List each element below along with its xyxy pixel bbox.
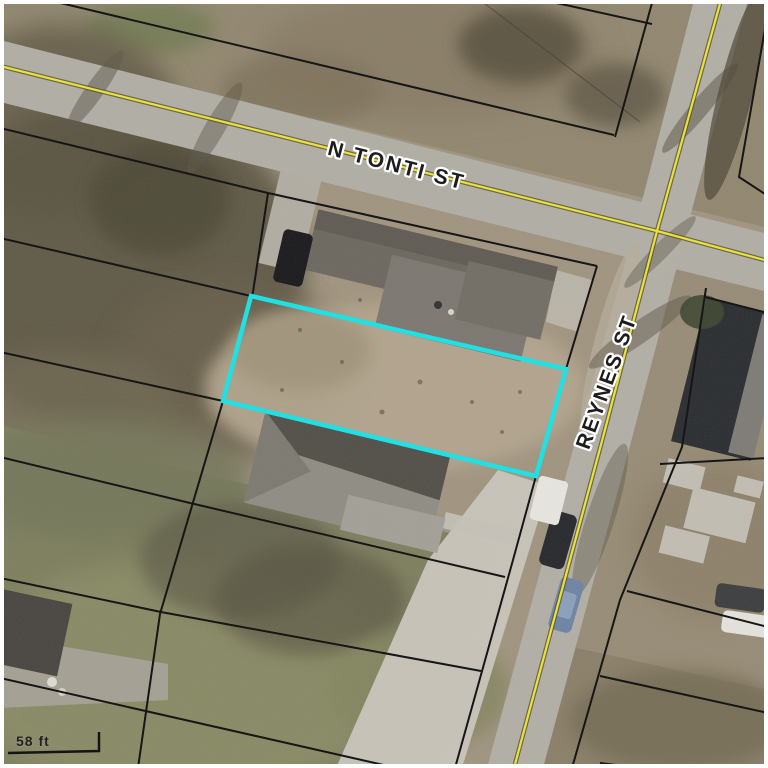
- map-canvas: N TONTI ST REYNES ST 58 ft: [0, 0, 768, 768]
- aerial-parcel-map: N TONTI ST REYNES ST 58 ft: [0, 0, 768, 768]
- scale-bar-label: 58 ft: [16, 733, 50, 749]
